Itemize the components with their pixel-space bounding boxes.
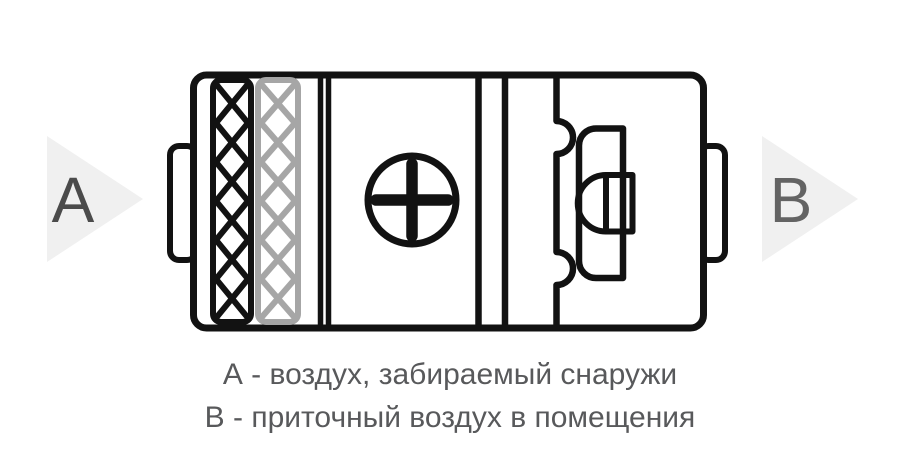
heater-icon [368,156,456,244]
ventilation-unit-diagram: А В [0,0,900,462]
unit-drawing [170,75,725,328]
diagram-canvas: А В [0,0,900,462]
caption-line-1: А - воздух, забираемый снаружи [223,358,677,391]
outlet-label: В [770,164,813,236]
inlet-label: А [52,164,95,236]
caption-line-2: В - приточный воздух в помещения [205,401,696,434]
